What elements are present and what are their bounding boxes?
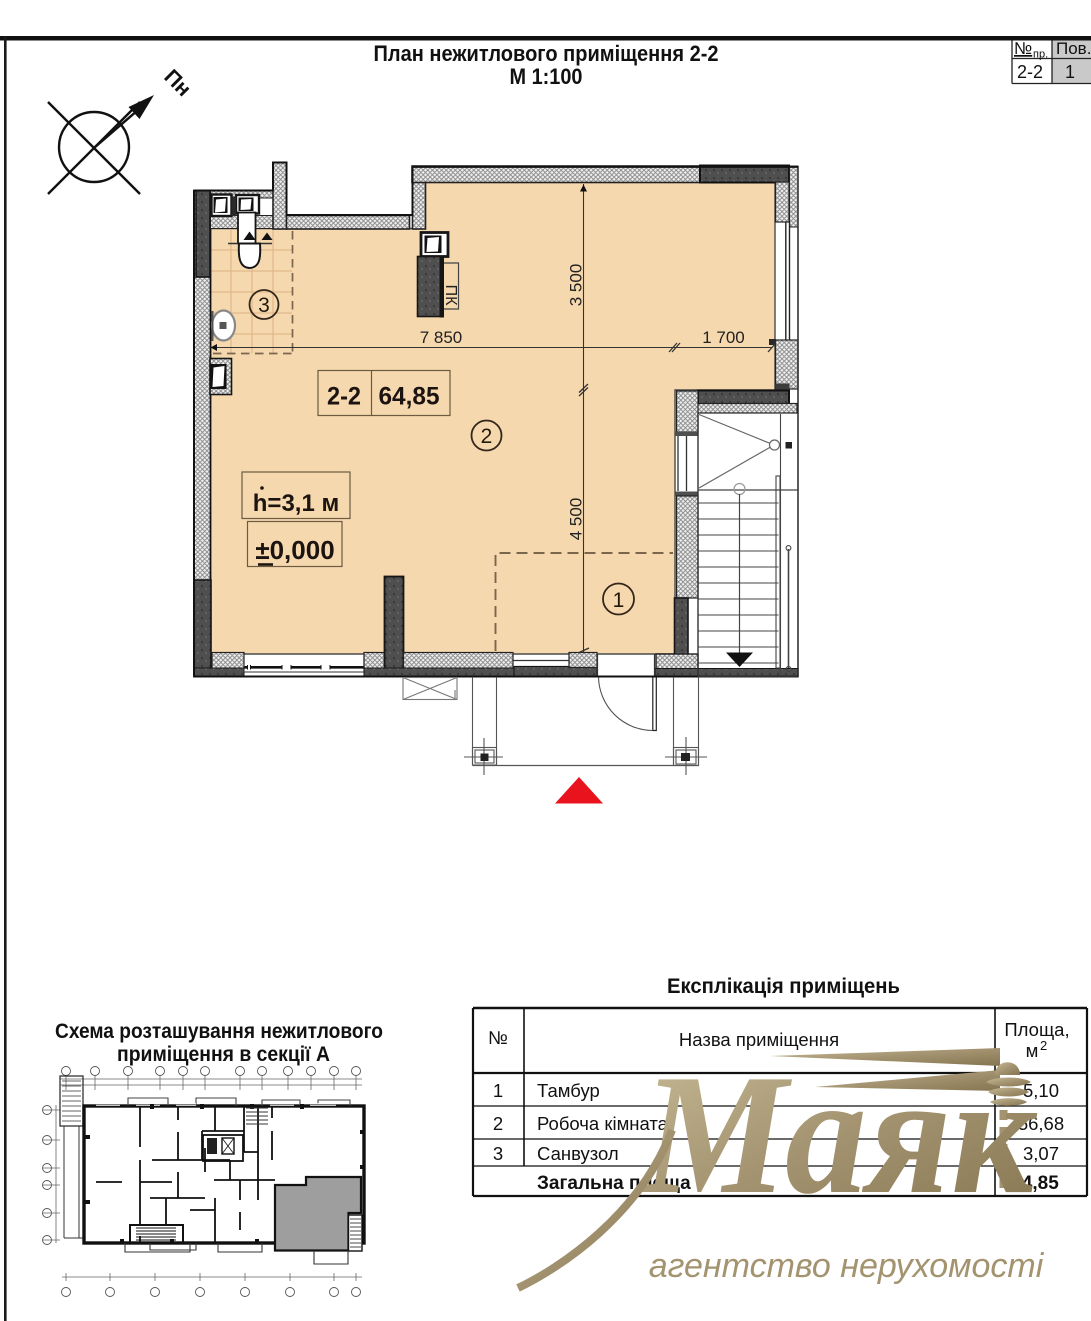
svg-text:План нежитлового приміщення 2-: План нежитлового приміщення 2-2 [374, 41, 719, 66]
svg-text:1: 1 [1065, 62, 1075, 82]
svg-text:ПК: ПК [442, 285, 459, 307]
svg-text:№: № [1014, 39, 1032, 58]
svg-text:Пов.: Пов. [1056, 39, 1091, 58]
svg-text:64,85: 64,85 [379, 383, 440, 411]
svg-text:Тамбур: Тамбур [537, 1080, 600, 1101]
svg-text:№: № [488, 1027, 508, 1048]
svg-text:±0,000: ±0,000 [255, 535, 334, 565]
svg-text:1: 1 [613, 589, 625, 612]
svg-text:Санвузол: Санвузол [537, 1143, 619, 1164]
svg-text:Схема розташування нежитлового: Схема розташування нежитлового [55, 1020, 383, 1043]
svg-text:Площа,: Площа, [1004, 1019, 1069, 1040]
svg-text:Експлікація приміщень: Експлікація приміщень [667, 975, 900, 998]
svg-text:3: 3 [258, 294, 270, 317]
svg-text:1: 1 [493, 1080, 503, 1101]
svg-text:М 1:100: М 1:100 [510, 64, 583, 89]
svg-text:2: 2 [1040, 1038, 1047, 1053]
svg-text:2-2: 2-2 [1017, 62, 1043, 82]
svg-text:7 850: 7 850 [420, 328, 463, 347]
svg-text:1 700: 1 700 [702, 328, 745, 347]
svg-text:3: 3 [493, 1143, 503, 1164]
svg-text:агентство нерухомості: агентство нерухомості [649, 1247, 1045, 1285]
svg-text:3 500: 3 500 [567, 264, 586, 307]
svg-text:2: 2 [493, 1113, 503, 1134]
svg-text:4 500: 4 500 [567, 498, 586, 541]
svg-text:пр.: пр. [1033, 49, 1048, 61]
svg-text:h=3,1 м: h=3,1 м [253, 490, 339, 517]
svg-text:Маяк: Маяк [639, 1040, 1037, 1230]
svg-text:приміщення в секції А: приміщення в секції А [117, 1043, 330, 1066]
svg-text:2: 2 [481, 425, 493, 448]
svg-text:2-2: 2-2 [327, 383, 361, 411]
svg-text:Пн: Пн [159, 65, 195, 101]
